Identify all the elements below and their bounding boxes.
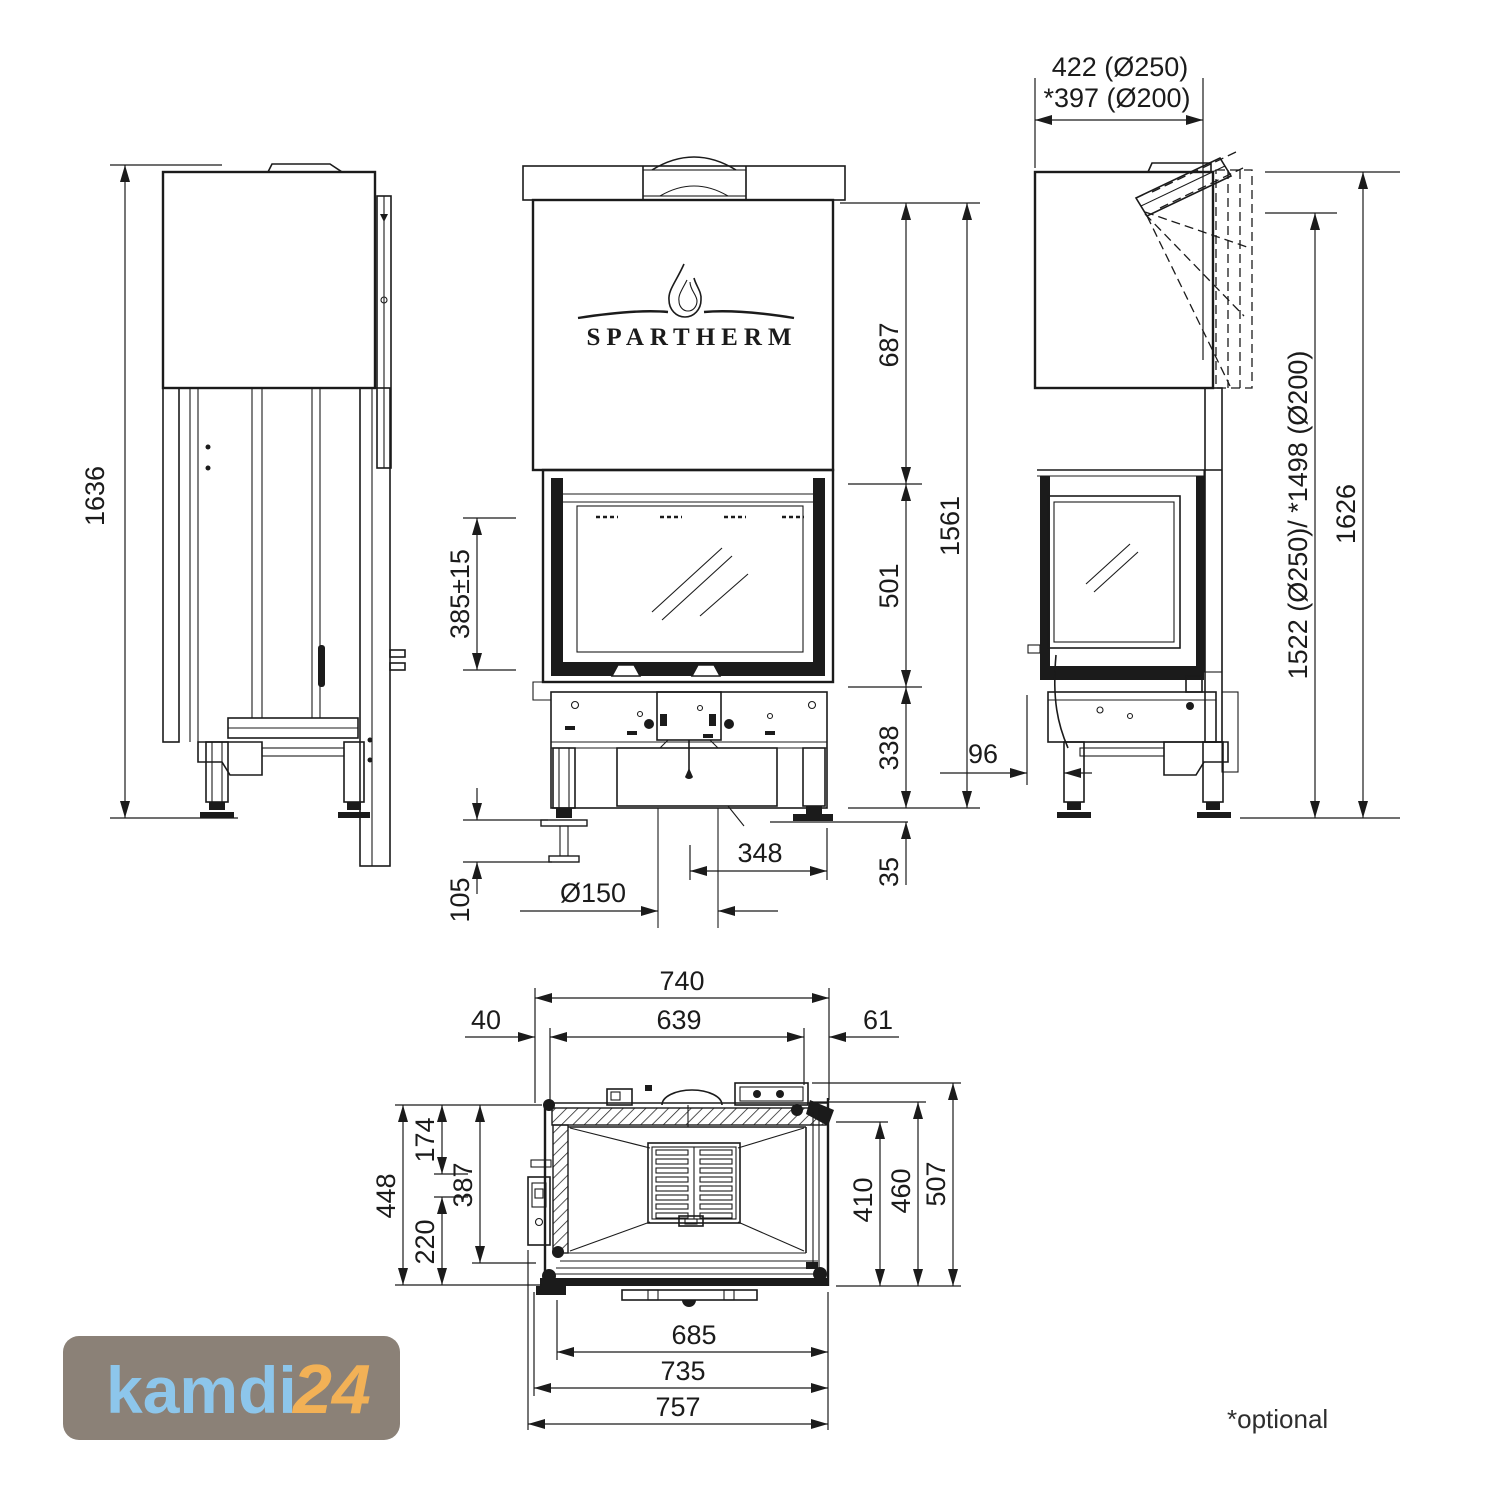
front-view-outline: SPARTHERM bbox=[523, 157, 845, 928]
side-view-left-dimensions: 1636 bbox=[80, 165, 238, 818]
dim-plan-width-460: 460 bbox=[886, 1168, 916, 1213]
dim-plan-front-width-685: 685 bbox=[671, 1320, 716, 1350]
dim-right-flue-offset-250: 422 (Ø250) bbox=[1052, 52, 1189, 82]
front-view: SPARTHERM bbox=[445, 157, 980, 928]
logo-text-kamdi: kamdi bbox=[106, 1353, 297, 1427]
dim-plan-front-width-757: 757 bbox=[655, 1392, 700, 1422]
side-view-right-outline bbox=[1028, 152, 1252, 818]
dim-front-total-height: 1561 bbox=[935, 496, 965, 556]
plan-view-outline bbox=[528, 1083, 834, 1307]
dim-plan-depth-174: 174 bbox=[410, 1117, 440, 1162]
side-view-left-outline bbox=[163, 164, 405, 866]
side-view-left: 1636 bbox=[80, 164, 405, 866]
fireplace-dimension-drawing: 1636 SPARTHERM bbox=[0, 0, 1500, 1500]
dim-plan-width-410: 410 bbox=[848, 1177, 878, 1222]
spartherm-wordmark: SPARTHERM bbox=[587, 324, 798, 351]
spartherm-logo: SPARTHERM bbox=[578, 264, 798, 351]
dim-plan-depth-387: 387 bbox=[448, 1162, 478, 1207]
dim-front-foot-height: 35 bbox=[874, 857, 904, 887]
dim-front-air-intake: Ø150 bbox=[560, 878, 626, 908]
dim-front-firebox-height: 501 bbox=[874, 563, 904, 608]
plan-view-dimensions: 740 639 40 61 448 174 220 387 bbox=[371, 966, 961, 1430]
dim-left-overall-height: 1636 bbox=[80, 466, 110, 526]
dim-plan-body-width: 740 bbox=[659, 966, 704, 996]
dim-plan-depth-448: 448 bbox=[371, 1173, 401, 1218]
technical-drawing-page: 1636 SPARTHERM bbox=[0, 0, 1500, 1500]
dim-plan-offset-left: 40 bbox=[471, 1005, 501, 1035]
dim-right-flue-offset-200: *397 (Ø200) bbox=[1043, 83, 1190, 113]
side-view-right-dimensions: 422 (Ø250) *397 (Ø200) 1522 (Ø250)/ *149… bbox=[940, 52, 1400, 818]
dim-right-leg-offset: 96 bbox=[968, 739, 998, 769]
dim-plan-inner-width: 639 bbox=[656, 1005, 701, 1035]
dim-plan-offset-right: 61 bbox=[863, 1005, 893, 1035]
dim-plan-width-507: 507 bbox=[921, 1161, 951, 1206]
dim-front-flue-offset: 348 bbox=[737, 838, 782, 868]
dim-plan-depth-220: 220 bbox=[410, 1219, 440, 1264]
dim-right-flue-height: 1522 (Ø250)/ *1498 (Ø200) bbox=[1283, 351, 1313, 680]
dim-front-glass-sill-height: 385±15 bbox=[445, 549, 475, 639]
logo-text-24: 24 bbox=[291, 1350, 371, 1428]
optional-footnote: *optional bbox=[1227, 1404, 1328, 1434]
dim-front-base-height: 338 bbox=[874, 725, 904, 770]
dim-right-overall-height: 1626 bbox=[1331, 484, 1361, 544]
kamdi24-logo: kamdi 24 bbox=[63, 1336, 400, 1440]
dim-front-hood-height: 687 bbox=[874, 322, 904, 367]
dim-front-foot-adjust: 105 bbox=[445, 877, 475, 922]
dim-plan-front-width-735: 735 bbox=[660, 1356, 705, 1386]
plan-view: 740 639 40 61 448 174 220 387 bbox=[371, 966, 961, 1430]
side-view-right: 422 (Ø250) *397 (Ø200) 1522 (Ø250)/ *149… bbox=[940, 52, 1400, 818]
